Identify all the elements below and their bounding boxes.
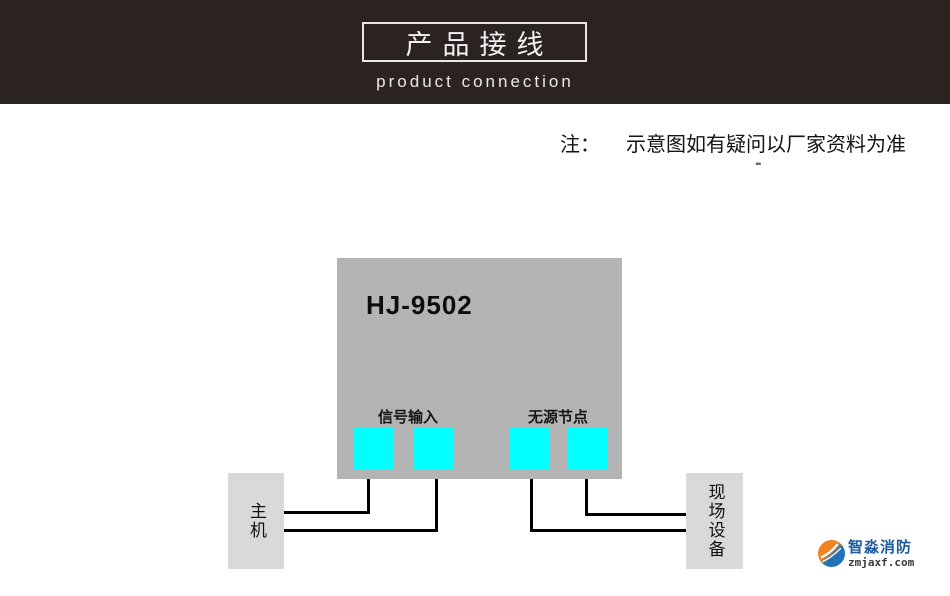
wire-passive1-vertical — [530, 479, 533, 532]
terminal-block-4 — [567, 428, 608, 470]
brand-logo-icon — [818, 540, 845, 567]
device-model-label: HJ-9502 — [366, 290, 473, 321]
note-text: 示意图如有疑问以厂家资料为准 — [626, 128, 906, 157]
wire-signal1-vertical — [367, 479, 370, 514]
wire-signal2-vertical — [435, 479, 438, 532]
device-panel: HJ-9502 信号输入 无源节点 — [337, 258, 622, 479]
title-box: 产品接线 — [362, 22, 587, 62]
field-device-box: 现场设备 — [686, 473, 743, 569]
passive-node-label: 无源节点 — [528, 406, 588, 427]
wire-signal2-horizontal — [284, 529, 438, 532]
brand-domain: zmjaxf.com — [848, 556, 914, 569]
header-banner: 产品接线 product connection — [0, 0, 950, 104]
terminal-block-3 — [509, 428, 550, 470]
wire-passive1-horizontal — [530, 529, 686, 532]
note-line: 注： 示意图如有疑问以厂家资料为准 — [560, 128, 906, 157]
field-device-box-label: 现场设备 — [705, 483, 725, 559]
wire-passive2-horizontal — [585, 513, 686, 516]
terminal-block-1 — [353, 428, 394, 470]
page-subtitle: product connection — [0, 72, 950, 92]
host-box-label: 主机 — [246, 502, 266, 540]
terminal-block-2 — [413, 428, 454, 470]
brand-logo: 智淼消防 zmjaxf.com — [818, 540, 914, 569]
signal-input-label: 信号输入 — [378, 406, 438, 427]
page: 产品接线 product connection 注： 示意图如有疑问以厂家资料为… — [0, 0, 950, 596]
wire-passive2-vertical — [585, 479, 588, 516]
host-box: 主机 — [228, 473, 284, 569]
brand-name: 智淼消防 — [848, 540, 914, 556]
wire-signal1-horizontal — [284, 511, 370, 514]
note-prefix: 注： — [560, 128, 600, 157]
note-dash: - — [755, 152, 762, 175]
page-title: 产品接线 — [396, 23, 554, 62]
